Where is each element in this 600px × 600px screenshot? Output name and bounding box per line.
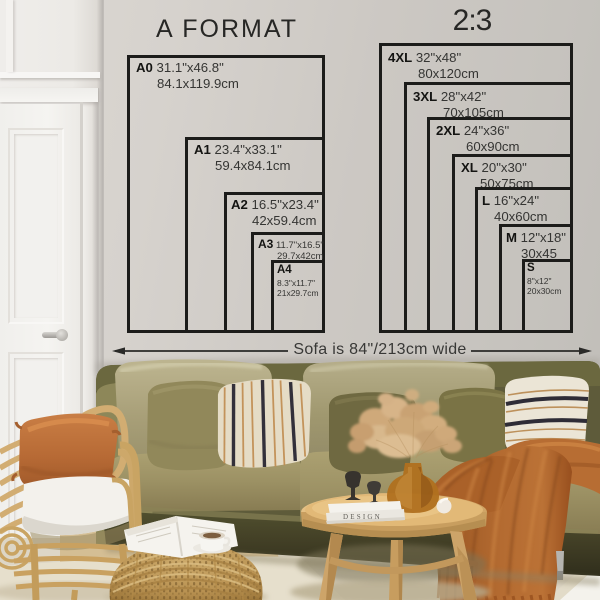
- svg-text:DESIGN: DESIGN: [343, 513, 382, 521]
